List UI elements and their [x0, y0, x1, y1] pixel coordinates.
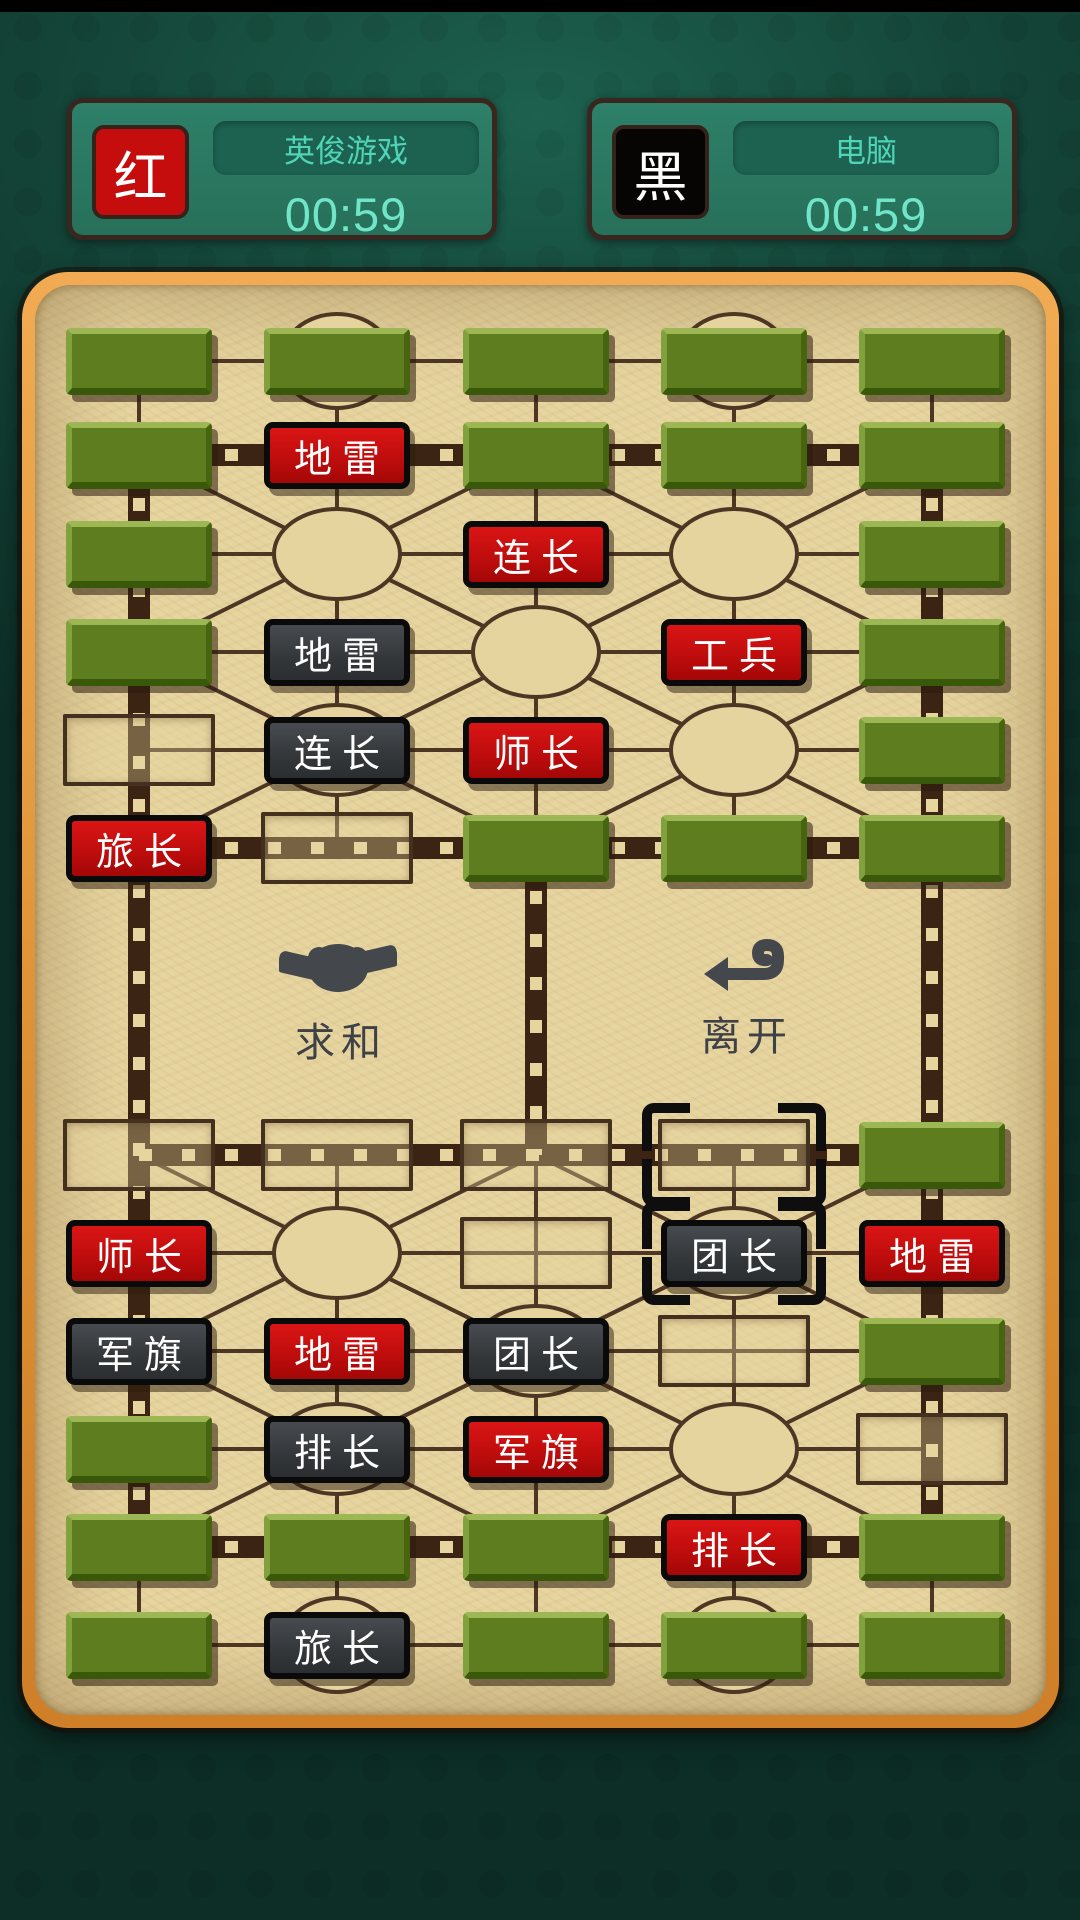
hidden-piece[interactable]: [859, 815, 1005, 882]
hidden-piece[interactable]: [66, 619, 212, 686]
empty-cell[interactable]: [856, 1413, 1008, 1485]
hidden-piece[interactable]: [66, 1612, 212, 1679]
player-panel-red: 红 英俊游戏 00:59: [67, 98, 497, 240]
leave-button[interactable]: 离开: [652, 928, 836, 1073]
hidden-piece[interactable]: [859, 717, 1005, 784]
hidden-piece[interactable]: [661, 1612, 807, 1679]
black-side-badge: 黑: [612, 125, 709, 219]
hidden-piece[interactable]: [859, 328, 1005, 395]
hidden-piece[interactable]: [66, 422, 212, 489]
red-piece-division-commander[interactable]: 师长: [463, 717, 609, 784]
hidden-piece[interactable]: [264, 328, 410, 395]
board-grid-lines: [22, 272, 1059, 1728]
hidden-piece[interactable]: [66, 328, 212, 395]
hidden-piece[interactable]: [859, 422, 1005, 489]
hidden-piece[interactable]: [463, 422, 609, 489]
player-panel-black: 黑 电脑 00:59: [587, 98, 1017, 240]
red-piece-brigade-commander[interactable]: 旅长: [66, 815, 212, 882]
hidden-piece[interactable]: [859, 619, 1005, 686]
empty-cell[interactable]: [261, 1119, 413, 1191]
black-piece-landmine[interactable]: 地雷: [264, 619, 410, 686]
hidden-piece[interactable]: [661, 328, 807, 395]
red-piece-landmine[interactable]: 地雷: [859, 1220, 1005, 1287]
hidden-piece[interactable]: [661, 422, 807, 489]
draw-offer-button[interactable]: 求和: [246, 928, 430, 1073]
red-piece-division-commander[interactable]: 师长: [66, 1220, 212, 1287]
black-player-name: 电脑: [733, 121, 999, 175]
hidden-piece[interactable]: [66, 1514, 212, 1581]
black-piece-brigade-commander[interactable]: 旅长: [264, 1612, 410, 1679]
black-player-timer: 00:59: [733, 187, 999, 242]
red-piece-landmine[interactable]: 地雷: [264, 1318, 410, 1385]
empty-cell[interactable]: [658, 1315, 810, 1387]
black-piece-regiment-commander[interactable]: 团长: [661, 1220, 807, 1287]
draw-button-label: 求和: [246, 1010, 430, 1068]
hidden-piece[interactable]: [463, 1612, 609, 1679]
empty-cell[interactable]: [658, 1119, 810, 1191]
red-piece-army-flag[interactable]: 军旗: [463, 1416, 609, 1483]
empty-cell[interactable]: [460, 1119, 612, 1191]
hidden-piece[interactable]: [859, 1318, 1005, 1385]
hidden-piece[interactable]: [463, 1514, 609, 1581]
hidden-piece[interactable]: [463, 815, 609, 882]
game-board: 地雷连长地雷工兵连长师长旅长师长团长地雷军旗地雷团长排长军旗排长旅长 求和 离开: [22, 272, 1059, 1728]
black-piece-regiment-commander[interactable]: 团长: [463, 1318, 609, 1385]
hidden-piece[interactable]: [66, 1416, 212, 1483]
empty-cell[interactable]: [63, 1119, 215, 1191]
black-piece-platoon-commander[interactable]: 排长: [264, 1416, 410, 1483]
red-piece-engineer[interactable]: 工兵: [661, 619, 807, 686]
hidden-piece[interactable]: [859, 1122, 1005, 1189]
game-screen: 红 英俊游戏 00:59 黑 电脑 00:59 地雷连长地雷工兵连长师长旅长师长…: [0, 0, 1080, 1920]
red-player-name: 英俊游戏: [213, 121, 479, 175]
empty-cell[interactable]: [261, 812, 413, 884]
empty-cell[interactable]: [63, 714, 215, 786]
empty-cell[interactable]: [460, 1217, 612, 1289]
hidden-piece[interactable]: [264, 1514, 410, 1581]
leave-button-label: 离开: [652, 1004, 836, 1062]
red-piece-landmine[interactable]: 地雷: [264, 422, 410, 489]
hidden-piece[interactable]: [661, 815, 807, 882]
hidden-piece[interactable]: [463, 328, 609, 395]
black-piece-army-flag[interactable]: 军旗: [66, 1318, 212, 1385]
hidden-piece[interactable]: [859, 1612, 1005, 1679]
leave-arrow-icon: [698, 928, 790, 996]
red-piece-company-commander[interactable]: 连长: [463, 521, 609, 588]
status-bar: [0, 0, 1080, 12]
red-player-timer: 00:59: [213, 187, 479, 242]
hidden-piece[interactable]: [66, 521, 212, 588]
hidden-piece[interactable]: [859, 521, 1005, 588]
handshake-icon: [279, 928, 397, 1002]
red-piece-platoon-commander[interactable]: 排长: [661, 1514, 807, 1581]
hidden-piece[interactable]: [859, 1514, 1005, 1581]
red-side-badge: 红: [92, 125, 189, 219]
black-piece-company-commander[interactable]: 连长: [264, 717, 410, 784]
